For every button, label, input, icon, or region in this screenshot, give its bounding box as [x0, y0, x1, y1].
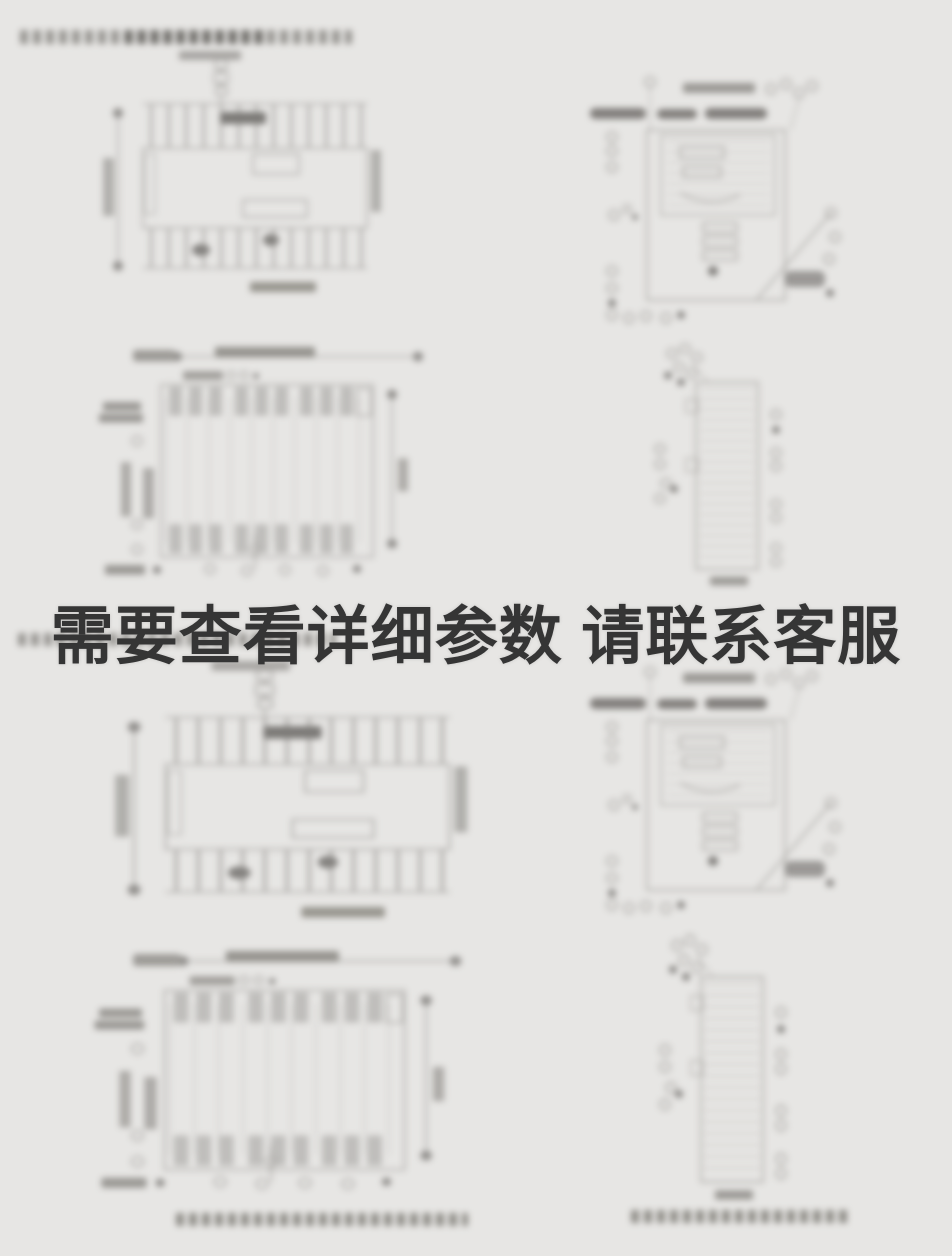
blurred-section-title-top-dark-segment	[125, 30, 265, 44]
blurred-caption-bottom-left	[176, 1213, 468, 1226]
side-view-drawing-top-right	[585, 75, 855, 325]
side-view-drawing-lower-right	[585, 665, 855, 915]
terminal-diagram-mid-right	[650, 344, 800, 592]
blurred-datasheet-page: 需要查看详细参数 请联系客服	[0, 0, 952, 1256]
mounting-view-drawing-mid-left	[95, 344, 475, 596]
blurred-caption-bottom-right	[631, 1210, 849, 1223]
mounting-view-drawing-bottom-left	[90, 948, 520, 1210]
front-view-drawing-lower-left	[105, 660, 485, 926]
front-view-drawing-top-left	[95, 50, 395, 300]
watermark-contact-text: 需要查看详细参数 请联系客服	[0, 586, 952, 677]
terminal-diagram-bottom-right	[655, 935, 805, 1207]
